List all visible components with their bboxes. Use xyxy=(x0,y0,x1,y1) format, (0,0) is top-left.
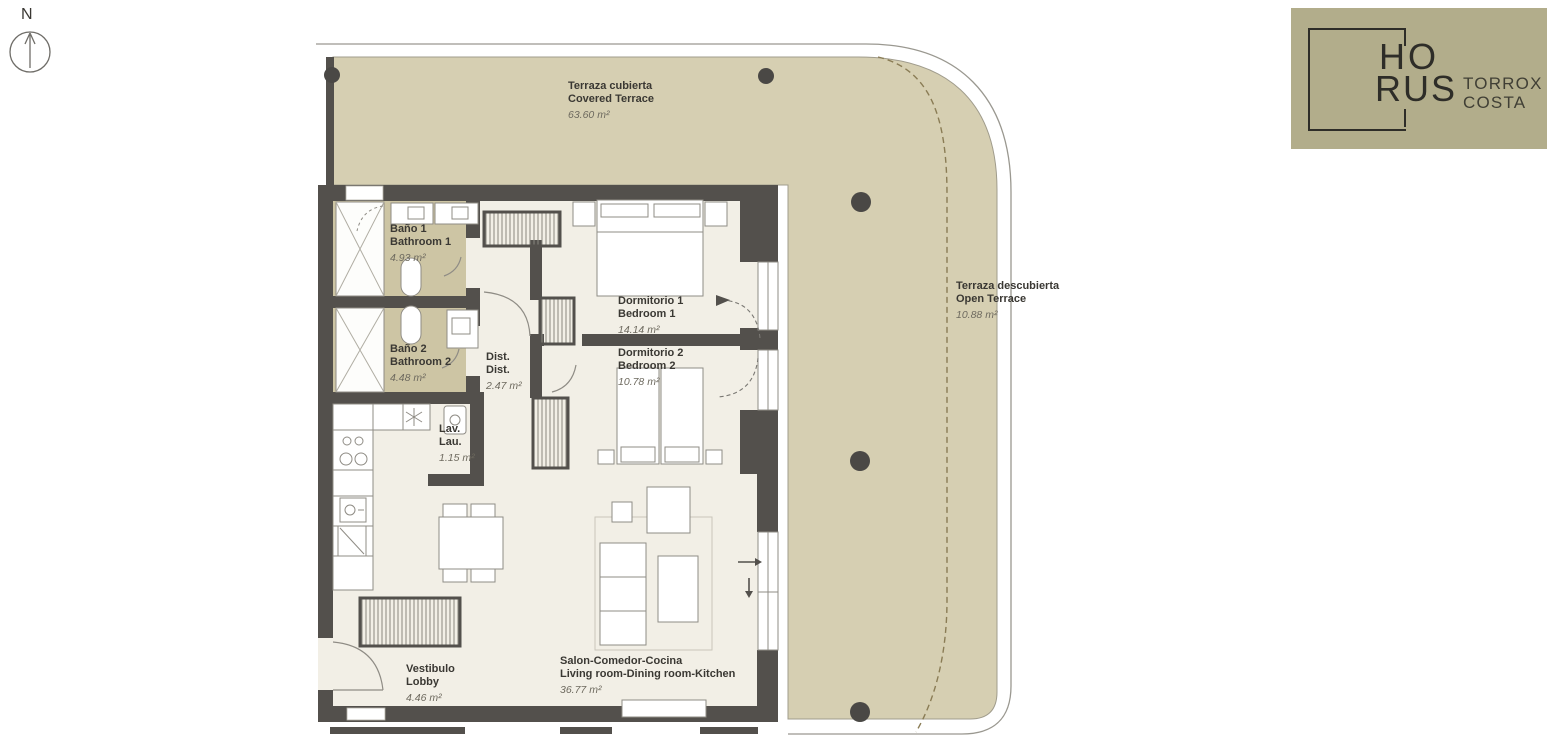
room-area: 4.93 m² xyxy=(390,252,451,265)
room-label-lobby: Vestibulo Lobby 4.46 m² xyxy=(406,663,455,705)
compass-icon xyxy=(10,32,50,72)
room-label-bedroom-2: Dormitorio 2 Bedroom 2 10.78 m² xyxy=(618,347,683,389)
room-area: 14.14 m² xyxy=(618,324,683,337)
room-name-en: Lau. xyxy=(439,436,475,449)
dining-table-icon xyxy=(439,504,503,582)
room-name-en: Bedroom 2 xyxy=(618,360,683,373)
room-name-es: Vestibulo xyxy=(406,663,455,676)
room-name-es: Dormitorio 2 xyxy=(618,347,683,360)
room-name-es: Terraza cubierta xyxy=(568,80,654,93)
room-name-en: Living room-Dining room-Kitchen xyxy=(560,668,735,681)
room-area: 4.46 m² xyxy=(406,692,455,705)
room-name-es: Dormitorio 1 xyxy=(618,295,683,308)
room-name-es: Baño 1 xyxy=(390,223,451,236)
room-label-bedroom-1: Dormitorio 1 Bedroom 1 14.14 m² xyxy=(618,295,683,337)
logo-wordmark-bottom: RUS xyxy=(1375,72,1457,106)
room-name-es: Terraza descubierta xyxy=(956,280,1059,293)
room-name-en: Open Terrace xyxy=(956,293,1059,306)
room-name-es: Lav. xyxy=(439,423,475,436)
room-label-laundry: Lav. Lau. 1.15 m² xyxy=(439,423,475,465)
room-name-en: Bathroom 1 xyxy=(390,236,451,249)
room-area: 2.47 m² xyxy=(486,380,522,393)
room-area: 63.60 m² xyxy=(568,109,654,122)
room-label-covered-terrace: Terraza cubierta Covered Terrace 63.60 m… xyxy=(568,80,654,122)
north-label: N xyxy=(21,6,33,24)
room-area: 4.48 m² xyxy=(390,372,451,385)
brand-logo-badge: HO RUS TORROX COSTA xyxy=(1291,8,1547,149)
logo-square-outline-right-bottom xyxy=(1404,109,1406,127)
room-name-en: Bedroom 1 xyxy=(618,308,683,321)
room-area: 10.78 m² xyxy=(618,376,683,389)
brand-name-line2: COSTA xyxy=(1463,93,1543,112)
room-label-living: Salon-Comedor-Cocina Living room-Dining … xyxy=(560,655,735,697)
brand-name-line1: TORROX xyxy=(1463,74,1543,93)
room-name-es: Salon-Comedor-Cocina xyxy=(560,655,735,668)
room-label-bathroom-1: Baño 1 Bathroom 1 4.93 m² xyxy=(390,223,451,265)
room-name-es: Baño 2 xyxy=(390,343,451,356)
room-name-en: Covered Terrace xyxy=(568,93,654,106)
room-label-bathroom-2: Baño 2 Bathroom 2 4.48 m² xyxy=(390,343,451,385)
room-name-en: Dist. xyxy=(486,364,522,377)
room-area: 36.77 m² xyxy=(560,684,735,697)
room-area: 10.88 m² xyxy=(956,309,1059,322)
room-label-distributor: Dist. Dist. 2.47 m² xyxy=(486,351,522,393)
room-area: 1.15 m² xyxy=(439,452,475,465)
room-label-open-terrace: Terraza descubierta Open Terrace 10.88 m… xyxy=(956,280,1059,322)
room-name-en: Lobby xyxy=(406,676,455,689)
floor-plan-page: N Terraza cubierta Covered Terrace 63.60… xyxy=(0,0,1553,747)
brand-name: TORROX COSTA xyxy=(1463,74,1543,112)
room-name-es: Dist. xyxy=(486,351,522,364)
room-name-en: Bathroom 2 xyxy=(390,356,451,369)
